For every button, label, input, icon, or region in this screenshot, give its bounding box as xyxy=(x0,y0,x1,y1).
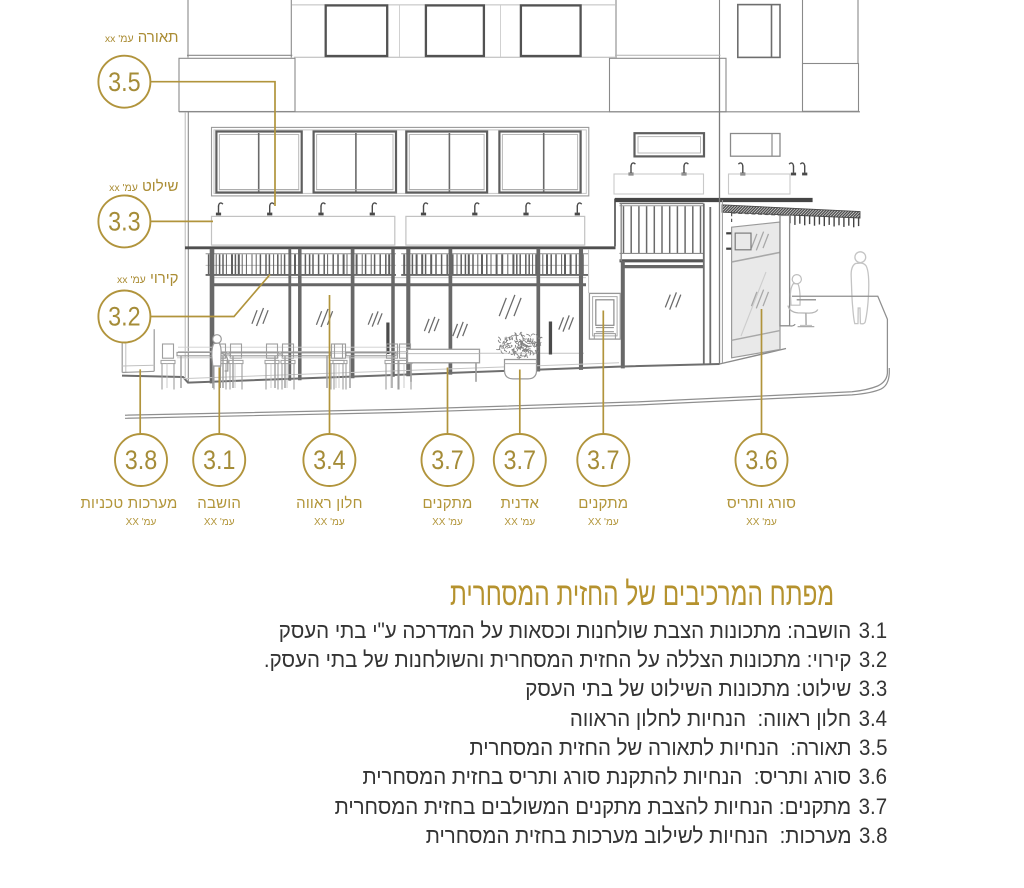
svg-text:3.1: 3.1 xyxy=(203,445,236,475)
svg-text:3.7: 3.7 xyxy=(431,445,464,475)
svg-text:3.4: 3.4 xyxy=(313,445,346,475)
svg-text:3.5: 3.5 xyxy=(108,67,141,97)
svg-text:3.6: 3.6 xyxy=(745,445,778,475)
svg-text:3.7: 3.7 xyxy=(587,445,620,475)
svg-text:3.8: 3.8 xyxy=(125,445,158,475)
svg-text:3.2: 3.2 xyxy=(108,302,141,332)
svg-text:3.3: 3.3 xyxy=(108,207,141,237)
svg-text:3.7: 3.7 xyxy=(504,445,537,475)
